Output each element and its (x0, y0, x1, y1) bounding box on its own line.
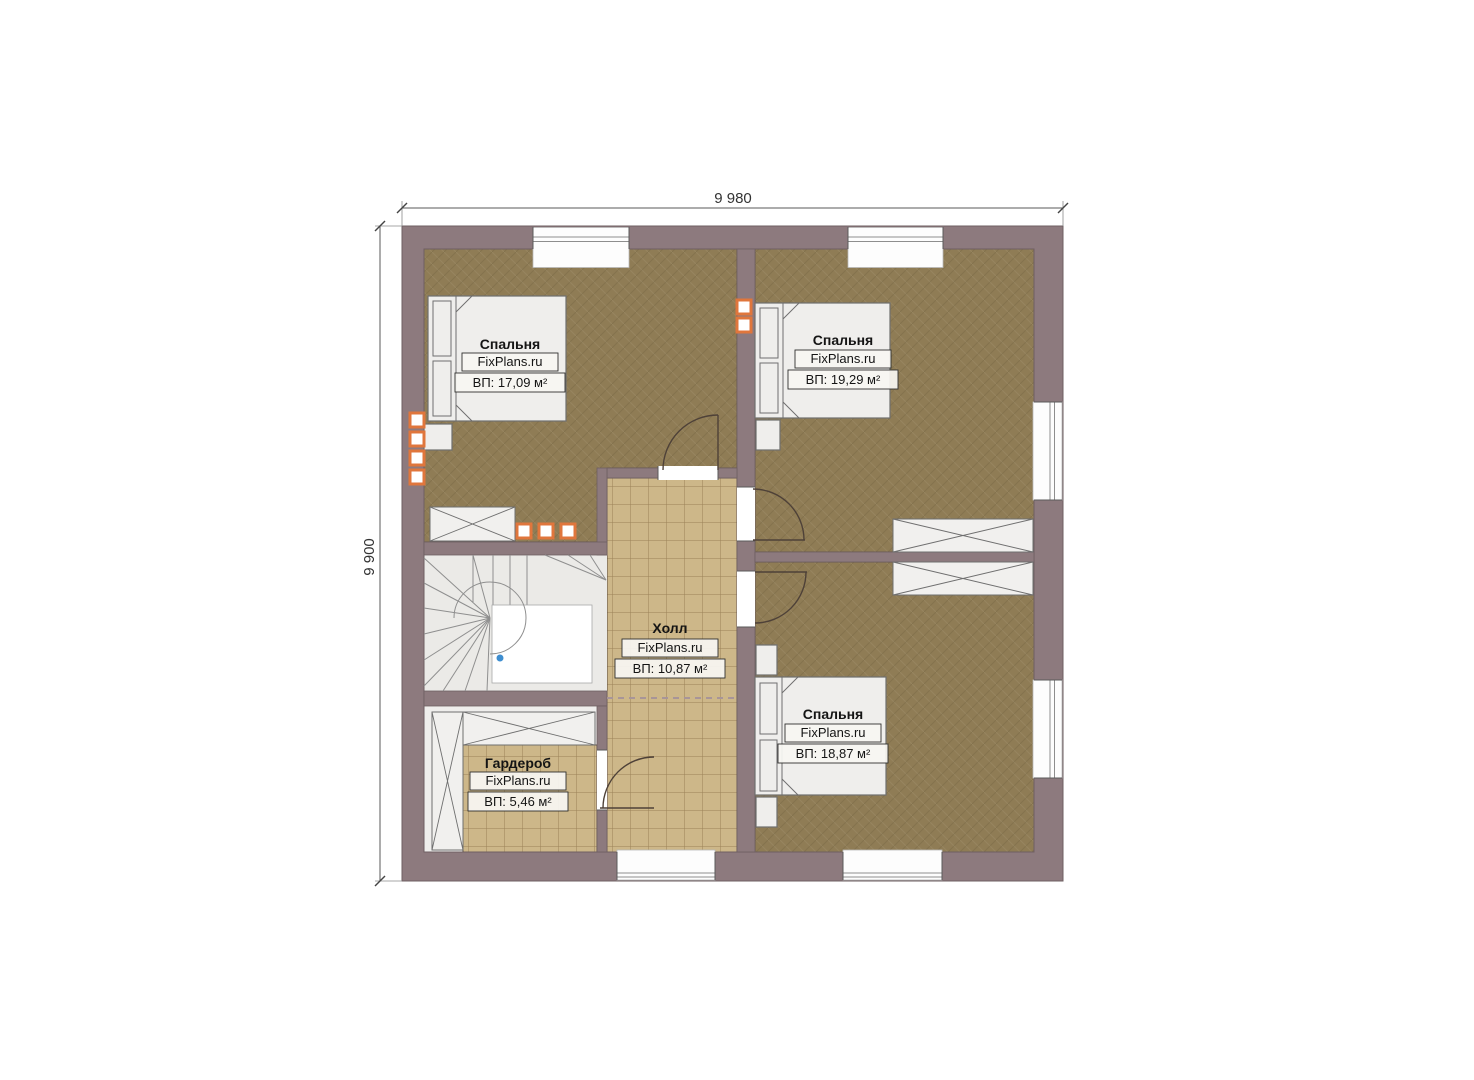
room-name: Спальня (480, 336, 540, 352)
room-area: ВП: 10,87 м² (633, 661, 708, 676)
room-name: Спальня (803, 706, 863, 722)
stair-landing (492, 605, 592, 683)
window-top-left (533, 227, 629, 268)
room-brand: FixPlans.ru (800, 725, 865, 740)
room-brand: FixPlans.ru (485, 773, 550, 788)
radiator-bedroom-tl (517, 524, 575, 538)
room-area: ВП: 18,87 м² (796, 746, 871, 761)
window-top-right (848, 227, 943, 268)
wall-center-vertical (737, 249, 755, 852)
room-area: ВП: 19,29 м² (806, 372, 881, 387)
room-name: Холл (652, 620, 687, 636)
wall-stairs-bottom (424, 691, 607, 706)
nightstand (424, 424, 452, 450)
room-name: Спальня (813, 332, 873, 348)
nightstand (756, 645, 777, 675)
dimension-left: 9 900 (361, 221, 402, 886)
closet-tl-bedroom (430, 507, 515, 541)
room-area: ВП: 5,46 м² (484, 794, 552, 809)
room-brand: FixPlans.ru (637, 640, 702, 655)
window-bottom-hall (617, 850, 715, 880)
closet-wardrobe-top (463, 712, 595, 745)
dimension-top-label: 9 980 (714, 190, 752, 207)
nightstand (756, 420, 780, 450)
room-brand: FixPlans.ru (810, 351, 875, 366)
nightstand (756, 797, 777, 827)
room-brand: FixPlans.ru (477, 354, 542, 369)
room-area: ВП: 17,09 м² (473, 375, 548, 390)
wall-bedrooms-divider (755, 552, 1034, 562)
floor-plan-page: 9 980 9 900 Спальня FixPlans.ru ВП: 17,0… (0, 0, 1474, 1080)
dimension-left-label: 9 900 (361, 538, 378, 576)
wall-stairs-top (424, 542, 607, 555)
closet-tr-bedroom (893, 519, 1033, 552)
stair-marker-dot (496, 654, 504, 662)
room-name: Гардероб (485, 755, 552, 771)
window-bottom-bedroom (843, 850, 942, 880)
floor-plan-drawing: 9 980 9 900 Спальня FixPlans.ru ВП: 17,0… (0, 0, 1474, 1080)
window-right-bottom (1033, 680, 1062, 778)
closet-br-bedroom (893, 562, 1033, 595)
window-right-top (1033, 402, 1062, 500)
dimension-top: 9 980 (397, 190, 1068, 226)
closet-wardrobe-left (432, 712, 463, 850)
